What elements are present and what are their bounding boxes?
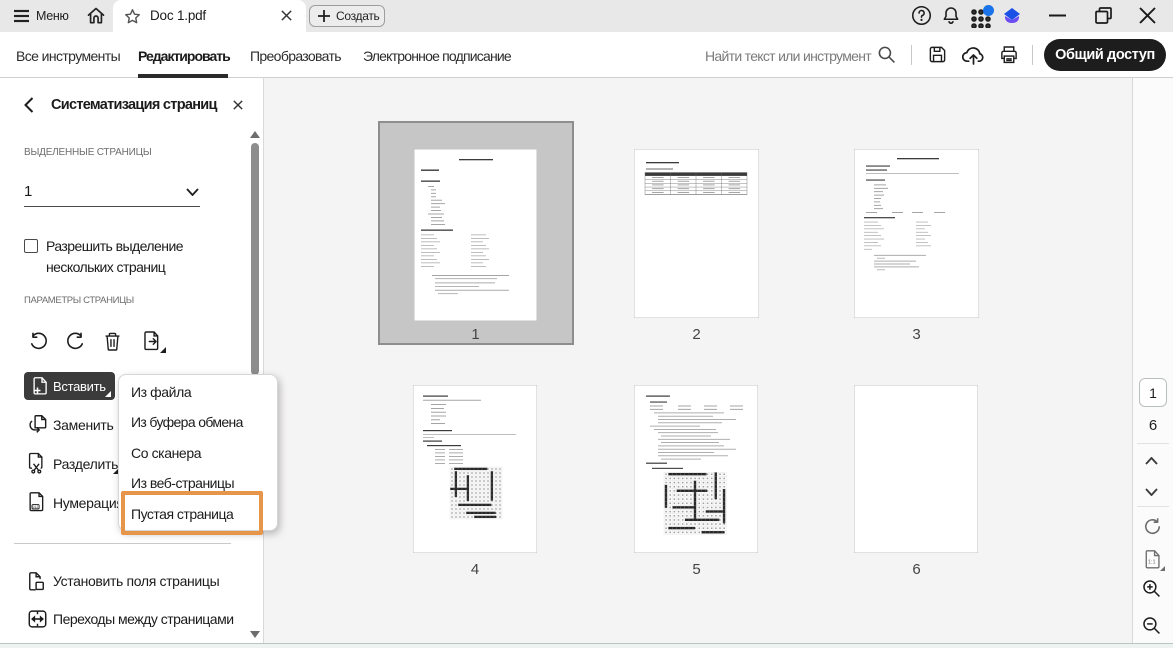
svg-text:1:1: 1:1 bbox=[1148, 559, 1156, 565]
svg-text:012: 012 bbox=[33, 505, 39, 509]
